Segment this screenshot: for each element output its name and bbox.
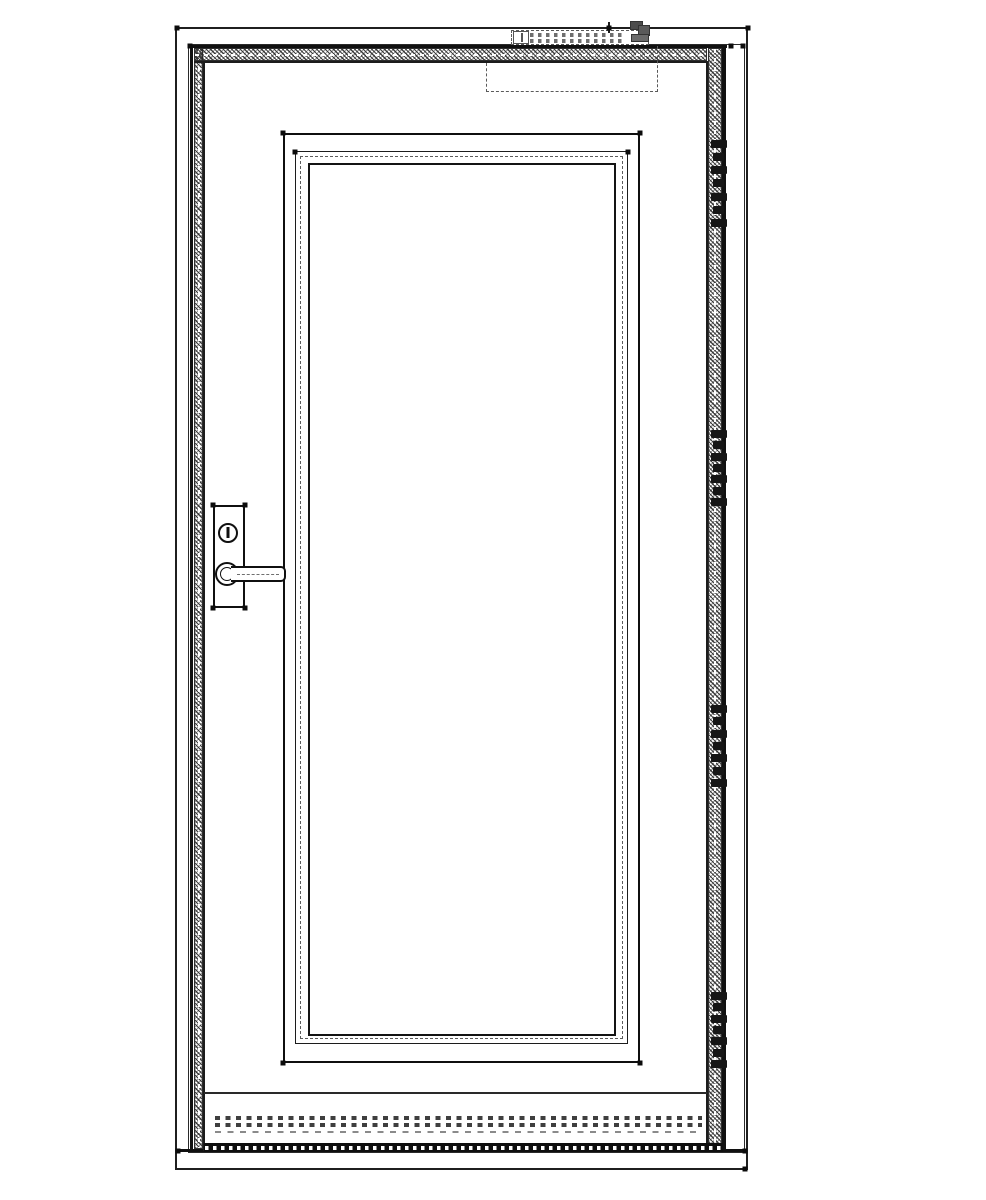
leaf-edge-right	[706, 61, 708, 1144]
hinge-knuckle	[713, 179, 724, 187]
node-dot	[211, 606, 216, 611]
node-dot	[729, 44, 734, 49]
node-dot	[176, 1149, 181, 1154]
hinge-knuckle	[713, 464, 724, 472]
seal-hatch-top	[194, 48, 707, 61]
lock-escutcheon-plate	[213, 505, 245, 608]
node-dot	[281, 1061, 286, 1066]
leaf-edge-bottom	[204, 1092, 707, 1094]
brush-seal-segments	[205, 1146, 722, 1150]
hinge-knuckle	[711, 754, 727, 762]
node-dot	[741, 44, 746, 49]
node-dot	[743, 1167, 748, 1172]
node-dot	[743, 1149, 748, 1154]
hinge-knuckle	[713, 717, 724, 725]
node-dot	[243, 503, 248, 508]
closer-arm-block	[631, 34, 649, 42]
lever-handle	[231, 566, 286, 582]
node-dot	[175, 26, 180, 31]
hinge-knuckle	[713, 206, 724, 214]
hinge-knuckle	[711, 730, 727, 738]
hinge-knuckle	[711, 475, 727, 483]
bottom-gasket-line	[215, 1123, 702, 1127]
bottom-gasket-line	[215, 1116, 702, 1120]
seal-hatch-left	[194, 48, 203, 1149]
hinge-knuckle	[713, 1049, 724, 1057]
hinge-knuckle	[713, 441, 724, 449]
rail-dash-row	[530, 39, 626, 43]
hinge-knuckle	[711, 166, 727, 174]
hinge-knuckle	[711, 453, 727, 461]
hinge-knuckle	[713, 153, 724, 161]
rail-end-bracket	[513, 31, 529, 44]
closer-body-hidden-edge	[486, 91, 658, 92]
hinge	[710, 992, 727, 1068]
frame-edge-left	[190, 45, 193, 1151]
hinge	[710, 140, 727, 227]
node-dot	[293, 150, 298, 155]
node-dot	[638, 131, 643, 136]
node-dot	[211, 503, 216, 508]
node-dot	[607, 26, 612, 31]
leaf-edge-left	[203, 61, 205, 1151]
glazing-frame-inner	[308, 163, 616, 1036]
hinge-knuckle	[713, 487, 724, 495]
seal-dash-line	[198, 49, 200, 1148]
hinge-knuckle	[711, 1015, 727, 1023]
door-closer-slide-rail	[511, 30, 649, 45]
hinge-knuckle	[711, 140, 727, 148]
hinge	[710, 430, 727, 506]
node-dot	[188, 44, 193, 49]
hinge-knuckle	[711, 1060, 727, 1068]
hinge-knuckle	[711, 193, 727, 201]
node-dot	[638, 1061, 643, 1066]
leaf-edge-top	[194, 61, 708, 63]
hinge-knuckle	[711, 1037, 727, 1045]
node-dot	[243, 606, 248, 611]
key-cylinder-icon	[218, 523, 238, 543]
hinge-knuckle	[713, 1026, 724, 1034]
hinge-knuckle	[711, 498, 727, 506]
hinge-knuckle	[711, 779, 727, 787]
hinge-knuckle	[711, 705, 727, 713]
hinge-knuckle	[713, 1003, 724, 1011]
node-dot	[746, 26, 751, 31]
seal-dash-line	[195, 54, 706, 56]
hinge-knuckle	[713, 767, 724, 775]
door-elevation-drawing	[0, 0, 986, 1200]
hinge	[710, 705, 727, 787]
hinge-knuckle	[713, 742, 724, 750]
rail-dash-row	[530, 33, 626, 37]
node-dot	[626, 150, 631, 155]
closer-body-hidden-edge	[657, 46, 658, 92]
hinge-knuckle	[711, 430, 727, 438]
bottom-gasket-line	[215, 1131, 702, 1133]
closer-body-hidden-edge	[486, 63, 487, 92]
threshold-brush-seal	[204, 1143, 723, 1152]
hinge-knuckle	[711, 992, 727, 1000]
node-dot	[281, 131, 286, 136]
hinge-knuckle	[711, 219, 727, 227]
